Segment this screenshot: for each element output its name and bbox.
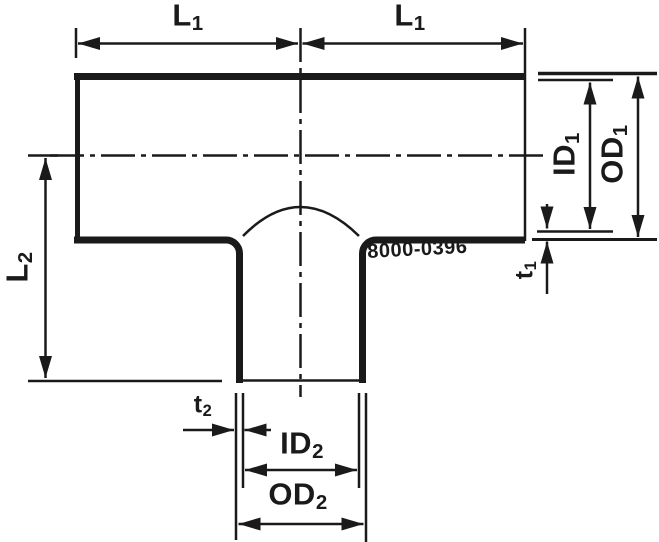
dim-label-l1-right: L1 xyxy=(394,0,425,34)
dim-label-od1: OD1 xyxy=(597,124,632,183)
linework-group xyxy=(28,28,657,542)
dim-label-l1-left-base: L xyxy=(172,0,191,33)
dim-label-id1: ID1 xyxy=(549,132,584,176)
dim-label-id2: ID2 xyxy=(280,428,324,463)
dim-label-t2: t2 xyxy=(194,392,213,419)
dim-label-t1-base: t xyxy=(510,270,538,279)
dim-label-l2-base: L xyxy=(0,263,35,282)
tee-technical-drawing: L1 L1 ID1 OD1 t1 L2 t2 ID2 OD2 8000-0396 xyxy=(0,0,659,542)
dim-label-l1-left-sub: 1 xyxy=(192,12,204,35)
dim-label-od2-sub: 2 xyxy=(316,491,328,514)
dim-label-t2-sub: 2 xyxy=(203,402,213,420)
dim-label-t2-base: t xyxy=(194,390,203,418)
dim-label-l1-right-sub: 1 xyxy=(414,12,426,35)
tee-drawing-linework xyxy=(0,0,659,542)
dim-label-od1-sub: 1 xyxy=(609,124,632,136)
dim-label-id1-base: ID xyxy=(547,144,582,176)
dim-label-od2-base: OD xyxy=(268,477,316,512)
dim-label-t1-sub: 1 xyxy=(522,261,540,271)
dim-label-od1-base: OD xyxy=(595,136,630,184)
body-bottom-left-and-branch-left-wall xyxy=(74,240,240,383)
dim-label-id2-base: ID xyxy=(280,426,312,461)
dim-label-l2-sub: 2 xyxy=(14,251,37,263)
dim-label-t1: t1 xyxy=(512,261,539,280)
dim-label-id1-sub: 1 xyxy=(561,132,584,144)
dim-label-l2: L2 xyxy=(2,251,37,282)
dim-label-l1-left: L1 xyxy=(172,0,203,34)
dim-label-l1-right-base: L xyxy=(394,0,413,33)
dim-label-od2: OD2 xyxy=(268,479,327,514)
dim-label-id2-sub: 2 xyxy=(312,440,324,463)
